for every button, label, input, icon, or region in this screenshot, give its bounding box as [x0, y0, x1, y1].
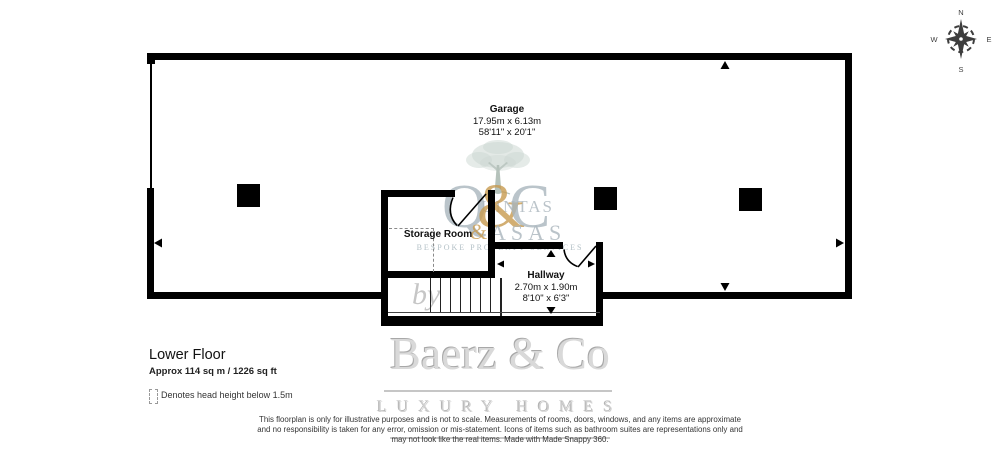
stair-tread: [440, 278, 441, 312]
garage-wall-right: [845, 53, 852, 299]
garage-dim-arrow-up-icon: [721, 61, 730, 69]
door-arc: [564, 250, 578, 267]
disclaimer-line: may not look like the real items. Made w…: [240, 435, 760, 445]
storage-wall-top: [381, 190, 455, 197]
pillar: [739, 188, 762, 211]
garage-wall-left-window: [150, 60, 152, 190]
stair-tread: [470, 278, 471, 312]
compass-north-label: N: [958, 8, 963, 17]
door-leaf: [578, 246, 596, 267]
monogram-ampersand: &: [477, 178, 525, 236]
legend-label: Denotes head height below 1.5m: [161, 390, 293, 400]
room-name: Hallway: [496, 270, 596, 282]
hallway-dim-arrow-left-icon: [497, 261, 504, 268]
floorplan-canvas: Q UINTAS & C & ASAS BESPOKE PROPERTY SER…: [0, 0, 1000, 449]
title-block: Lower Floor Approx 114 sq m / 1226 sq ft: [149, 347, 277, 378]
disclaimer-line: and no responsibility is taken for any e…: [240, 425, 760, 435]
disclaimer: This floorplan is only for illustrative …: [240, 415, 760, 445]
pillar: [237, 184, 260, 207]
garage-dim-arrow-right-icon: [836, 239, 844, 248]
legend-swatch: [149, 389, 158, 404]
stair-base-line: [388, 312, 600, 313]
garage-wall-bottom-left: [147, 292, 381, 299]
tree-watermark-icon: [448, 137, 548, 195]
hallway-door: [564, 246, 596, 267]
garage-wall-bottom-right: [600, 292, 852, 299]
storage-room-label: Storage Room: [381, 229, 495, 241]
room-dim-metric: 2.70m x 1.90m: [496, 282, 596, 293]
garage-room-label: Garage 17.95m x 6.13m 58'11" x 20'1": [407, 104, 607, 138]
door-leaf: [458, 194, 486, 226]
hallway-room-label: Hallway 2.70m x 1.90m 8'10" x 6'3": [496, 270, 596, 304]
compass-west-label: W: [930, 35, 938, 44]
compass-south-label: S: [958, 65, 963, 74]
stairwell-wall-bottom: [381, 316, 603, 326]
hallway-dim-arrow-up-icon: [547, 250, 556, 257]
storage-wall-left: [381, 190, 388, 326]
floor-area: Approx 114 sq m / 1226 sq ft: [149, 366, 277, 378]
garage-dim-arrow-left-icon: [154, 239, 162, 248]
door-arc: [450, 198, 457, 226]
disclaimer-line: This floorplan is only for illustrative …: [240, 415, 760, 425]
garage-wall-top: [147, 53, 852, 60]
stair-tread: [480, 278, 481, 312]
hallway-wall-right: [596, 242, 603, 326]
compass-rose: N W E S: [926, 2, 998, 76]
room-dim-metric: 17.95m x 6.13m: [407, 116, 607, 127]
stair-tread: [460, 278, 461, 312]
room-name: Storage Room: [381, 229, 495, 241]
monogram-c: C: [509, 178, 550, 236]
room-name: Garage: [407, 104, 607, 116]
page-title: Lower Floor: [149, 347, 277, 363]
pillar: [594, 187, 617, 210]
room-dim-imperial: 8'10" x 6'3": [496, 293, 596, 304]
brand-wordmark: Baerz & Co: [340, 327, 660, 380]
garage-wall-left: [147, 188, 154, 299]
storage-door: [450, 194, 486, 226]
garage-dim-arrow-down-icon: [721, 283, 730, 291]
watermark-by: by: [412, 278, 440, 312]
brand-rule-top: [384, 390, 612, 392]
stair-tread: [430, 278, 431, 312]
hallway-dim-arrow-right-icon: [588, 261, 595, 268]
monogram-q: Q: [442, 178, 487, 236]
stair-tread: [490, 278, 491, 312]
room-dim-imperial: 58'11" x 20'1": [407, 127, 607, 138]
compass-east-label: E: [986, 35, 991, 44]
hallway-wall-top: [495, 242, 563, 249]
stair-tread: [450, 278, 451, 312]
storage-wall-bottom: [381, 271, 495, 278]
